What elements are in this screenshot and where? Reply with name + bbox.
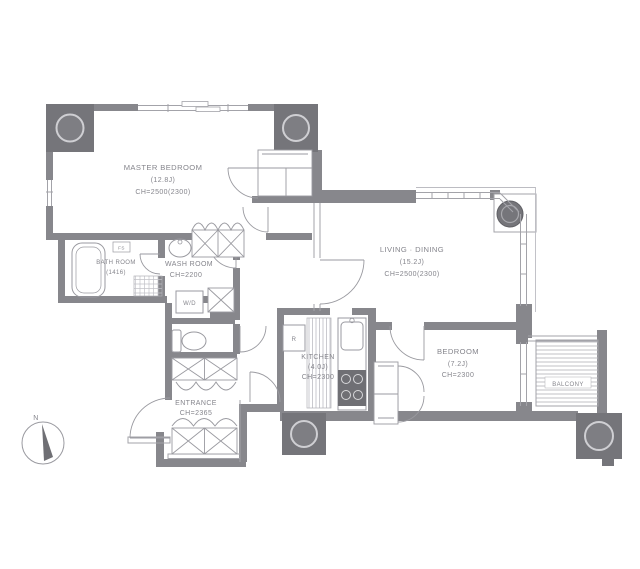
compass [22, 422, 64, 464]
entrance-ceiling: CH=2365 [180, 410, 213, 417]
bath-room-size: (1416) [106, 270, 126, 276]
living-dining-label: LIVING · DINING [380, 245, 444, 254]
fan-switch-label: FS [118, 246, 125, 251]
master-bedroom-label: MASTER BEDROOM [124, 163, 203, 172]
bedroom-ceiling: CH=2300 [442, 372, 475, 379]
column-top-right [274, 104, 318, 152]
column-top-left [46, 104, 94, 152]
north-label: N [33, 415, 38, 422]
balcony-label: BALCONY [552, 382, 583, 388]
kitchen-ceiling: CH=2300 [302, 374, 335, 381]
master-bedroom-top-window [138, 102, 248, 113]
bedroom-balcony-window [520, 342, 527, 406]
living-dining-ceiling: CH=2500(2300) [384, 271, 439, 278]
living-dining-door [320, 260, 364, 304]
corridor-living-wall-upper [314, 203, 320, 258]
bedroom-closet [374, 362, 398, 424]
floor-plan: MASTER BEDROOM (12.8J) CH=2500(2300) LIV… [0, 0, 640, 569]
balcony-area [536, 340, 598, 406]
entrance-label: ENTRANCE [175, 400, 217, 407]
basin-faucet [178, 240, 182, 244]
bedroom-size: (7.2J) [448, 361, 468, 368]
north-needle-icon [42, 424, 53, 461]
walls [46, 104, 607, 467]
floor-plan-drawing: MASTER BEDROOM (12.8J) CH=2500(2300) LIV… [0, 0, 640, 569]
master-bedroom-door [243, 207, 268, 232]
refrigerator-label: R [292, 337, 297, 343]
wash-basin [169, 239, 191, 257]
master-bedroom-ceiling: CH=2500(2300) [135, 189, 190, 196]
wash-room-label: WASH ROOM [165, 261, 213, 268]
bath-tile-floor [134, 276, 162, 296]
hall-storage [208, 288, 234, 312]
master-bedroom-size: (12.8J) [151, 177, 176, 184]
toilet-fixtures [172, 330, 206, 352]
washer-dryer-label: W/D [183, 301, 196, 307]
living-dining-size: (15.2J) [400, 259, 425, 266]
balcony-hatch [536, 340, 598, 406]
master-corner-closet [258, 150, 312, 196]
bedroom-label: BEDROOM [437, 347, 479, 356]
kitchen-label: KITCHEN [301, 354, 335, 361]
master-bedroom-left-window [45, 180, 54, 206]
bath-door [140, 254, 160, 274]
master-bottom-closet [192, 223, 244, 257]
toilet-bowl [182, 332, 206, 350]
hall-closet-lower [172, 358, 237, 390]
stove [338, 370, 366, 406]
kitchen-size: (4.0J) [308, 364, 328, 371]
bifold-door [176, 382, 236, 390]
column-bottom-right [576, 413, 622, 466]
bath-room-label: BATH ROOM [96, 260, 136, 266]
shoe-cabinet [172, 419, 237, 455]
bifold-door [192, 223, 244, 230]
wash-room-ceiling: CH=2200 [170, 272, 203, 279]
porch-step [168, 454, 240, 459]
column-bottom-center [282, 413, 326, 455]
bathtub-inner [76, 247, 101, 293]
toilet-tank [172, 330, 181, 352]
toilet-door [240, 326, 266, 352]
hallway-door [250, 372, 280, 402]
bifold-door [172, 419, 237, 427]
bedroom-door [390, 326, 424, 360]
master-closet-door [228, 168, 258, 198]
kitchen-aisle-hatch [307, 318, 331, 408]
